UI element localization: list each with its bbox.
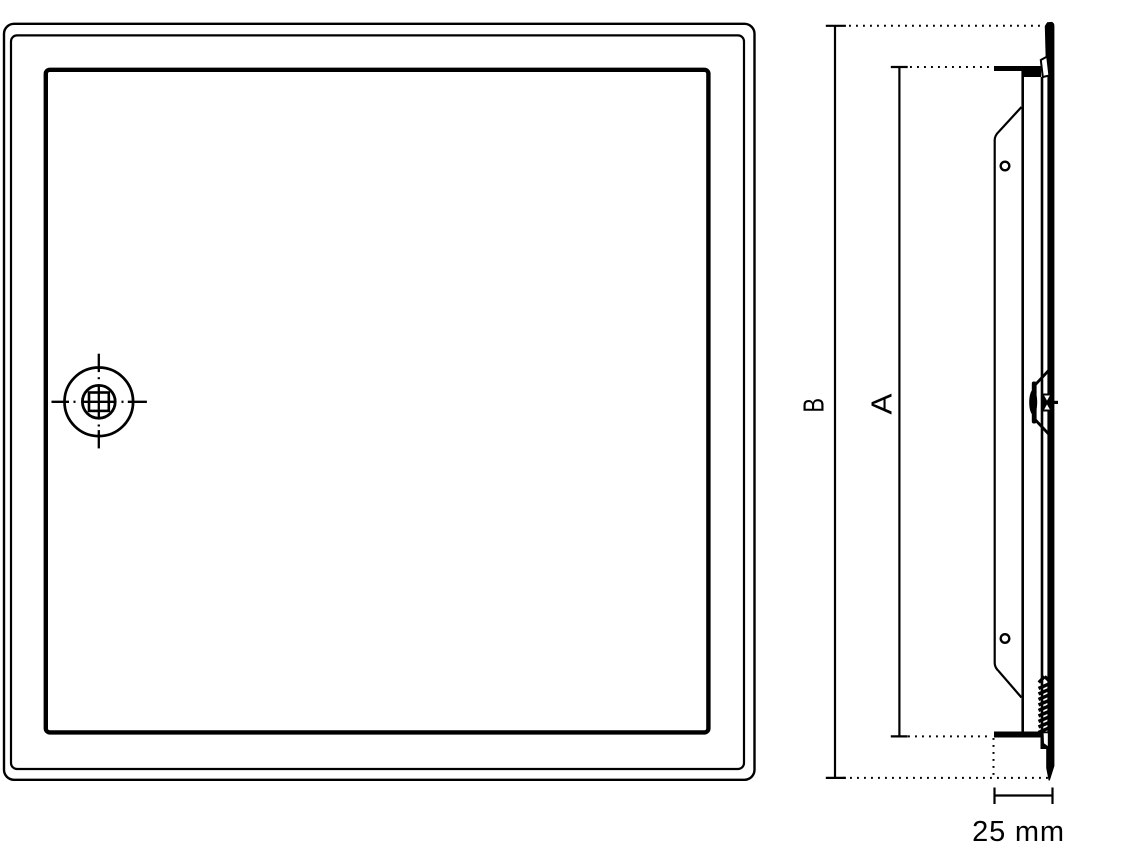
svg-text:B: B [799,398,831,413]
svg-text:25 mm: 25 mm [972,816,1065,848]
svg-text:A: A [867,393,899,415]
